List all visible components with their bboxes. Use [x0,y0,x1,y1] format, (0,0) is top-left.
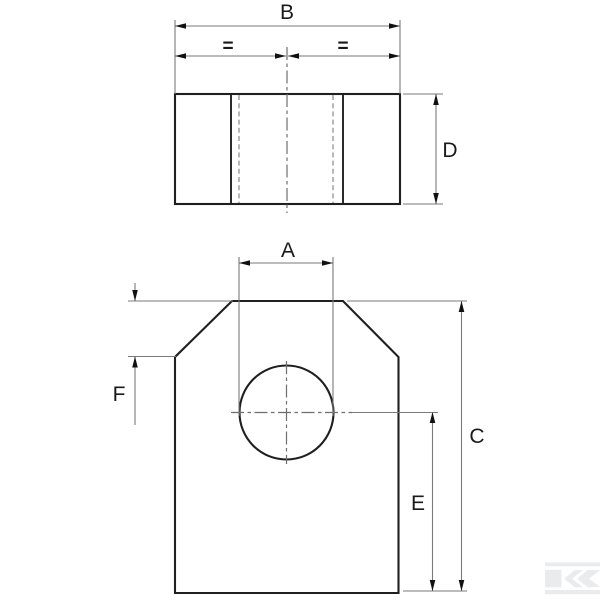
dimension-C: C [459,301,485,591]
dimension-F: F [113,283,233,425]
dimension-E: E [411,412,435,591]
top-view-dimensions: B = = D [175,1,458,204]
top-view [175,47,400,213]
arrowhead-down [430,580,436,591]
arrowhead-left [175,23,186,29]
dimension-label-C: C [469,425,484,448]
front-view-outline [175,301,399,593]
front-view-dimensions: A F E C [113,239,485,591]
k-logo-stem [545,570,562,588]
arrowhead-down [433,193,439,204]
equal-mark-right: = [337,36,348,57]
arrowhead-up [459,301,465,312]
arrowhead-center-right [288,53,299,59]
arrowhead-left [239,260,250,266]
front-view [175,301,438,593]
technical-drawing: B = = D [0,0,600,600]
arrowhead-right [389,23,400,29]
dimension-label-E: E [411,492,425,515]
arrowhead-down [132,290,138,301]
arrowhead-up [430,412,436,423]
equal-mark-left: = [222,36,233,57]
arrowhead-center-left [275,53,286,59]
kramp-k-logo-watermark [545,563,600,595]
arrowhead-up [132,357,138,368]
dimension-D: D [403,94,458,204]
dimension-label-F: F [113,383,126,406]
k-logo-top-bar [545,563,600,567]
dimension-label-A: A [281,239,295,262]
arrowhead-left [175,53,186,59]
k-logo-bottom-bar [545,590,600,594]
dimension-label-D: D [442,139,457,162]
arrowhead-down [459,580,465,591]
arrowhead-right [322,260,333,266]
dimension-label-B: B [280,1,294,24]
arrowhead-right [389,53,400,59]
arrowhead-up [433,94,439,105]
